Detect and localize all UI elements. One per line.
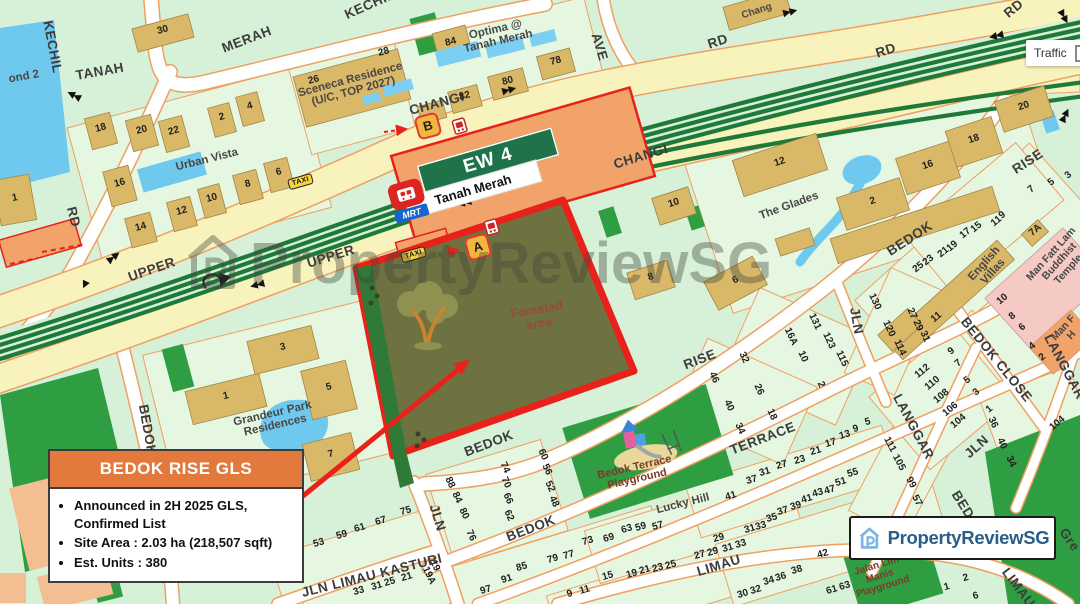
callout-bullet: Announced in 2H 2025 GLS, Confirmed List xyxy=(74,497,298,532)
brand-logo: PropertyReviewSG xyxy=(849,516,1056,560)
callout-bullet: Est. Units : 380 xyxy=(74,554,298,572)
callout-title: BEDOK RISE GLS xyxy=(50,451,302,489)
map-canvas[interactable]: KECHILKECHILTANAHMERAHAVERDRDRDRDCHANGIC… xyxy=(0,0,1080,604)
gls-callout: BEDOK RISE GLS Announced in 2H 2025 GLS,… xyxy=(48,449,304,583)
house-icon xyxy=(856,525,883,552)
traffic-checkbox[interactable] xyxy=(1075,45,1080,62)
traffic-toggle[interactable]: Traffic xyxy=(1026,40,1080,66)
callout-bullet: Site Area : 2.03 ha (218,507 sqft) xyxy=(74,534,298,552)
traffic-label: Traffic xyxy=(1034,46,1067,60)
brand-text: PropertyReviewSG xyxy=(888,527,1050,549)
callout-bullets: Announced in 2H 2025 GLS, Confirmed List… xyxy=(50,497,298,571)
